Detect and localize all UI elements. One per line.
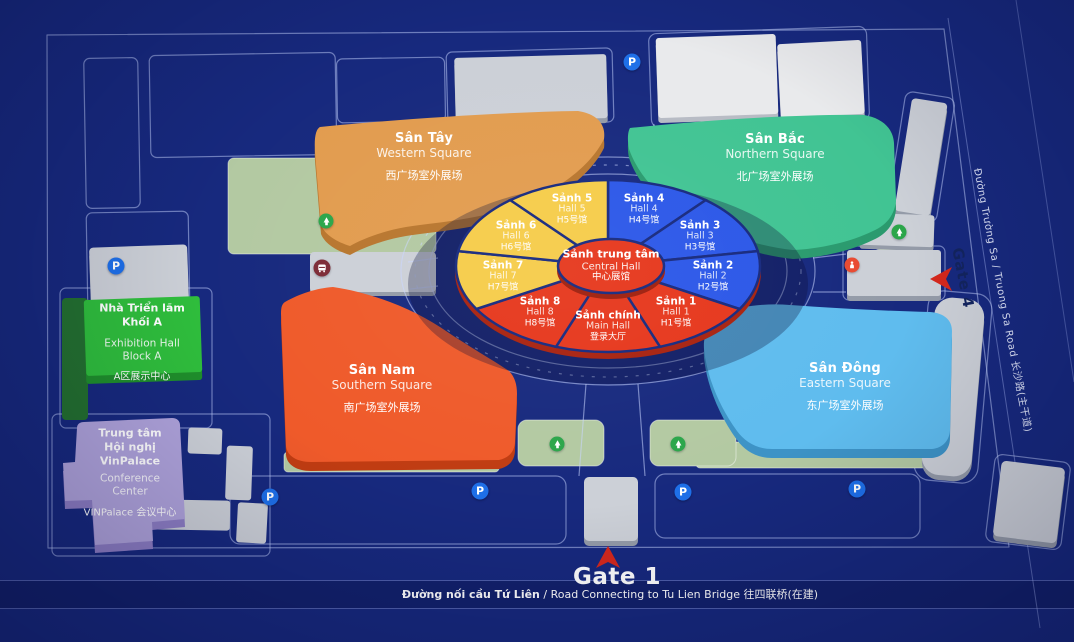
bus-icon <box>314 260 331 277</box>
parking-letter: P <box>628 56 636 69</box>
parking-icon: P <box>624 54 641 71</box>
bottom-road-label-en: / Road Connecting to Tu Lien Bridge 往四联桥… <box>540 588 818 601</box>
parking-letter: P <box>266 491 274 504</box>
parking-icon: P <box>262 489 279 506</box>
vinpalace-shape <box>63 418 185 553</box>
central-hall-shape <box>558 239 664 293</box>
right-road-edge-line <box>1016 0 1074 382</box>
map-graphics <box>0 0 1074 642</box>
tree-icon <box>550 437 565 452</box>
venue-map: Sân Tây Western Square 西广场室外展场 Sân Bắc N… <box>0 0 1074 642</box>
parking-icon: P <box>108 258 125 275</box>
bottom-road-label: Đường nối cầu Tứ Liên / Road Connecting … <box>402 586 818 602</box>
tree-icon <box>671 437 686 452</box>
parking-letter: P <box>476 485 484 498</box>
parking-icon: P <box>675 484 692 501</box>
parking-letter: P <box>853 483 861 496</box>
bottom-road-label-vi: Đường nối cầu Tứ Liên <box>402 588 540 601</box>
tree-icon <box>892 225 907 240</box>
parking-letter: P <box>679 486 687 499</box>
block-a-shape <box>84 296 203 384</box>
parking-letter: P <box>112 260 120 273</box>
tree-icon <box>319 214 334 229</box>
parking-icon: P <box>472 483 489 500</box>
service-point-icon <box>845 258 860 273</box>
parking-icon: P <box>849 481 866 498</box>
